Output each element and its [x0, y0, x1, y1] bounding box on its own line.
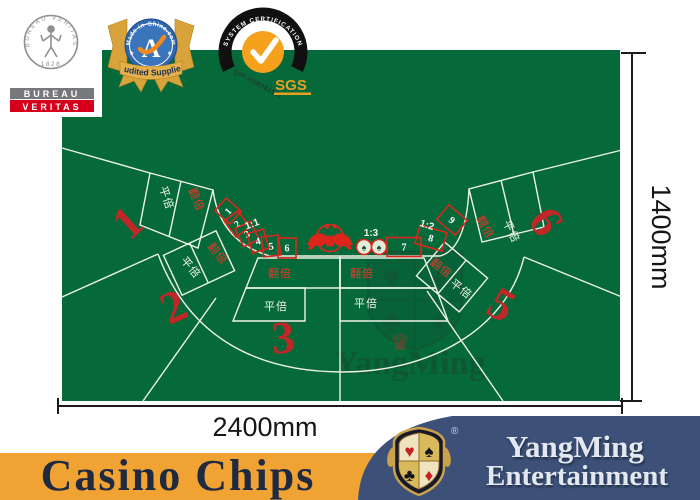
bv-line1: BUREAU: [24, 89, 81, 99]
footer-left-text: Casino Chips: [41, 451, 316, 500]
bv-year: 1828: [41, 61, 61, 68]
height-dimension-label: 1400mm: [646, 184, 676, 289]
odds-1to3: 1:3: [364, 228, 379, 239]
mic-star-icon: ★: [129, 50, 134, 57]
card-box-6: 6: [285, 244, 290, 255]
banker-spade-icon: ♠: [362, 243, 367, 253]
mic-star-icon: ★: [167, 50, 172, 57]
bv-line2: VERITAS: [22, 102, 81, 112]
logo-club-icon: ♣: [404, 466, 415, 485]
card-box-7: 7: [402, 243, 407, 254]
seat-number-3: 3: [270, 311, 297, 363]
seat4-flat-bet: 平倍: [354, 296, 378, 310]
footer-banner: Casino Chips ♥ ♠ ♣ ♦ ® YangMing Entertai…: [0, 416, 700, 500]
watermark-heart-icon: ♥: [382, 261, 400, 294]
footer-brand-line1: YangMing: [506, 429, 644, 464]
logo-diamond-icon: ♦: [425, 466, 434, 485]
bureau-veritas-badge: BUREAU VERITAS 1828 BUREAU VERITAS: [0, 0, 102, 117]
logo-heart-icon: ♥: [404, 442, 414, 461]
width-dimension-label: 2400mm: [212, 412, 317, 442]
sgs-brand: SGS: [275, 77, 307, 94]
banker-spade-icon: ♠: [377, 243, 382, 253]
seat3-double-bet: 翻倍: [268, 266, 292, 280]
product-image-canvas: ♥ ♠ ♣ ♦ ♛ YangMing: [0, 0, 700, 500]
seat4-double-bet: 翻倍: [350, 266, 374, 280]
logo-spade-icon: ♠: [424, 442, 433, 461]
product-image-page: ♥ ♠ ♣ ♦ ♛ YangMing: [0, 0, 700, 500]
registered-mark: ®: [451, 426, 459, 437]
footer-brand-line2: Entertainment: [486, 460, 668, 492]
